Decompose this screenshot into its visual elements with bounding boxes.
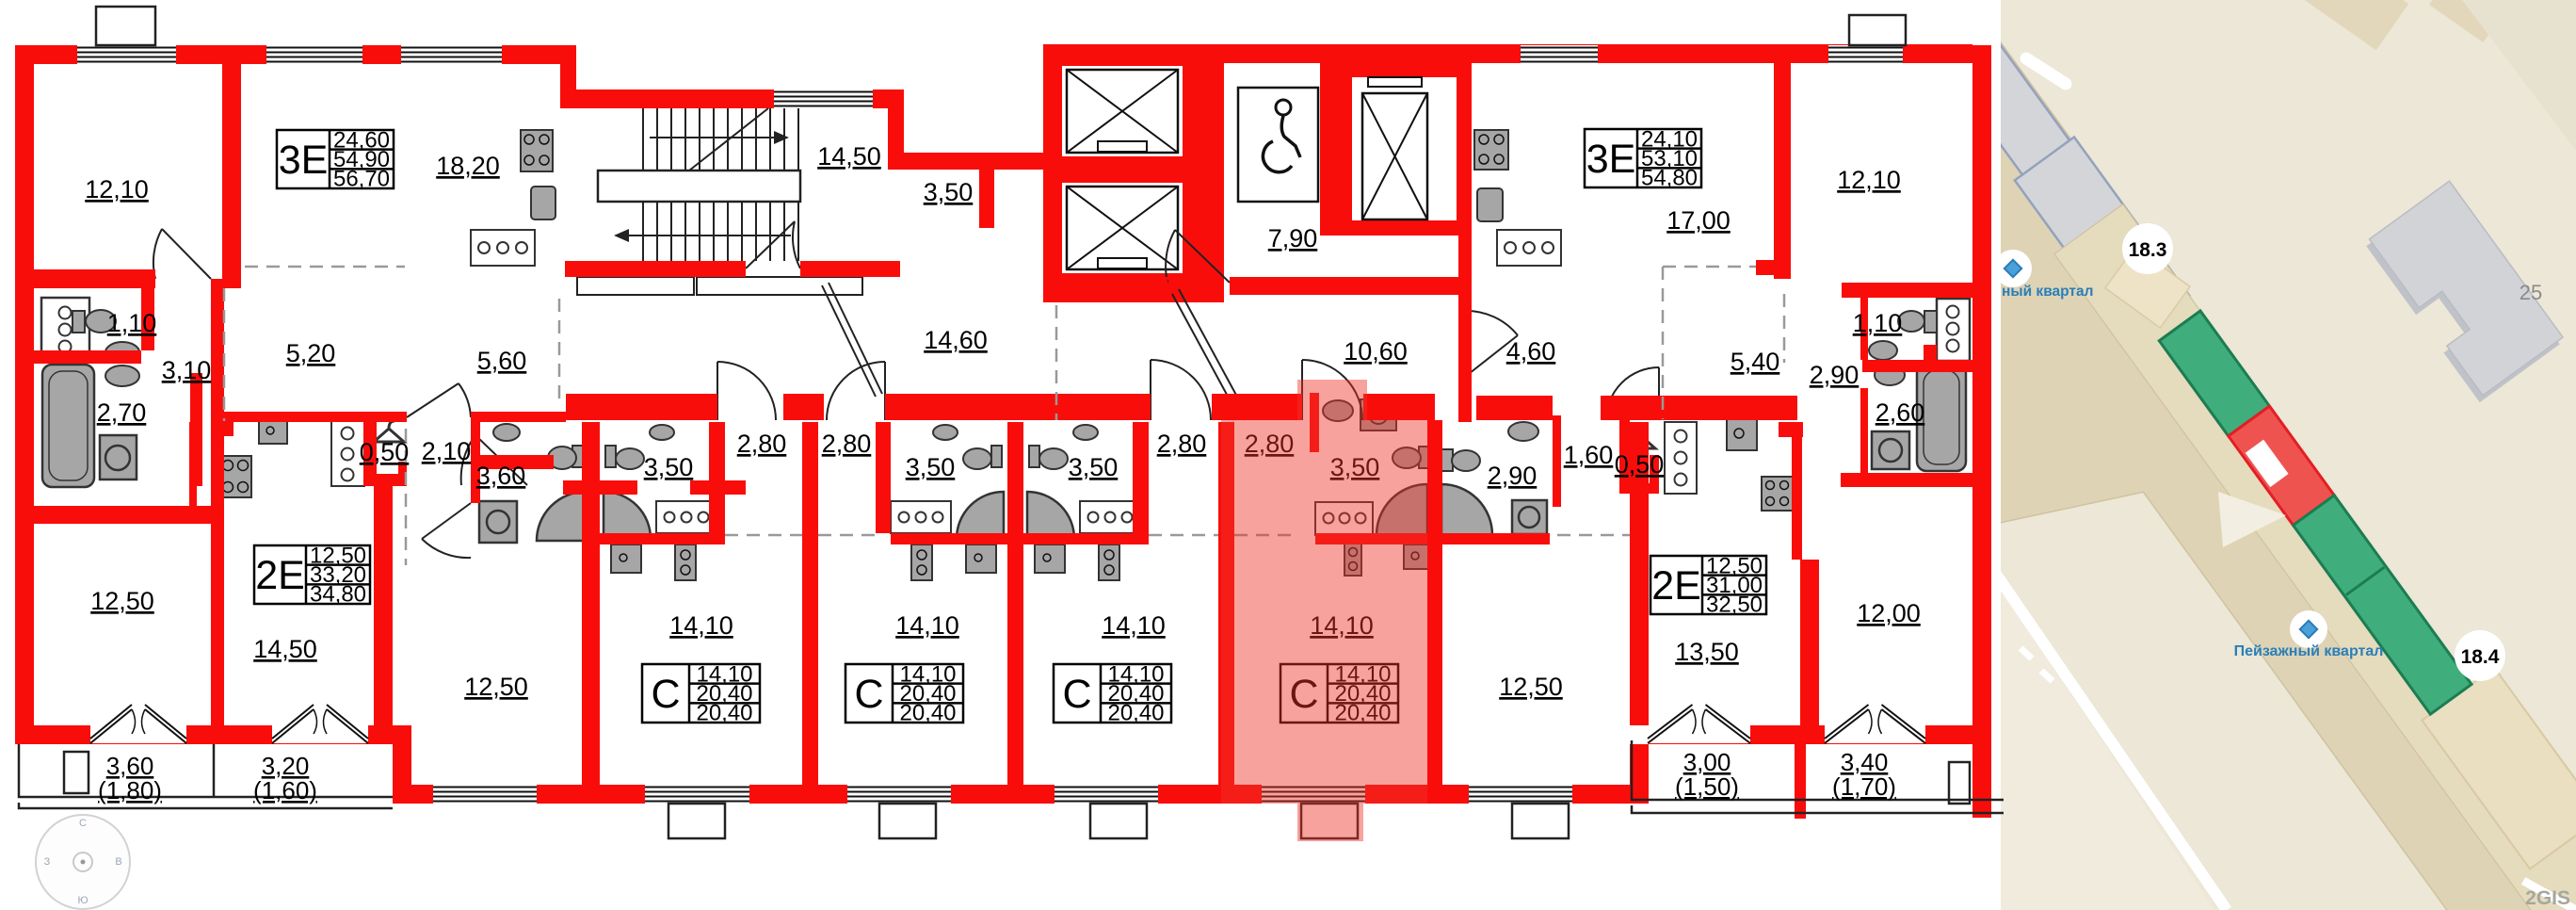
svg-text:3,50: 3,50 [924,178,974,206]
svg-text:2,10: 2,10 [422,437,472,465]
svg-text:14,10: 14,10 [669,611,733,640]
svg-text:4,60: 4,60 [1506,337,1556,366]
svg-text:5,40: 5,40 [1731,348,1780,376]
svg-text:0,50: 0,50 [360,438,410,466]
svg-text:2,60: 2,60 [1876,398,1925,427]
svg-text:3,10: 3,10 [162,356,212,384]
svg-text:20,40: 20,40 [1107,701,1164,726]
svg-text:34,80: 34,80 [310,582,366,608]
svg-text:7,90: 7,90 [1268,224,1318,252]
svg-text:1,10: 1,10 [1853,309,1903,337]
svg-text:0,50: 0,50 [1615,450,1665,479]
svg-text:12,50: 12,50 [464,673,528,701]
svg-text:(1,60): (1,60) [253,776,317,804]
svg-text:(1,70): (1,70) [1832,772,1896,801]
svg-text:(1,50): (1,50) [1675,772,1739,801]
svg-text:3,50: 3,50 [906,453,956,481]
svg-text:Пейзажный квартал: Пейзажный квартал [2234,643,2384,659]
svg-text:12,50: 12,50 [1499,673,1563,701]
svg-text:5,20: 5,20 [286,339,336,367]
svg-text:56,70: 56,70 [333,167,390,192]
svg-text:14,50: 14,50 [817,142,881,171]
svg-text:2,80: 2,80 [737,430,787,458]
svg-text:З: З [44,856,51,868]
svg-text:10,60: 10,60 [1344,337,1408,366]
svg-text:2,70: 2,70 [97,398,147,427]
svg-text:32,50: 32,50 [1706,593,1763,618]
svg-text:3,60: 3,60 [476,462,526,490]
svg-text:12,10: 12,10 [1837,166,1901,194]
svg-text:В: В [115,856,121,868]
svg-text:2,90: 2,90 [1810,361,1860,389]
svg-text:12,00: 12,00 [1857,599,1921,627]
svg-text:12,10: 12,10 [85,175,149,203]
svg-text:2GIS: 2GIS [2525,887,2570,909]
svg-text:С: С [854,672,883,717]
svg-text:12,50: 12,50 [90,587,154,615]
svg-text:3,50: 3,50 [644,453,694,481]
svg-text:С: С [651,672,680,717]
svg-text:ный квартал: ный квартал [2002,284,2093,300]
svg-text:14,10: 14,10 [1102,611,1166,640]
svg-text:20,40: 20,40 [899,701,956,726]
svg-text:14,50: 14,50 [253,635,317,663]
svg-text:1,60: 1,60 [1564,441,1614,469]
svg-text:3Е: 3Е [279,138,329,183]
svg-text:18.4: 18.4 [2461,646,2500,668]
svg-text:18.3: 18.3 [2129,239,2167,261]
svg-text:14,60: 14,60 [924,326,988,354]
svg-text:3Е: 3Е [1586,137,1636,182]
svg-text:2Е: 2Е [1651,563,1701,609]
svg-text:13,50: 13,50 [1675,638,1739,666]
svg-text:20,40: 20,40 [696,701,752,726]
svg-text:1,10: 1,10 [107,309,157,337]
svg-text:25: 25 [2520,281,2542,304]
svg-text:(1,80): (1,80) [98,776,162,804]
svg-text:С: С [1062,672,1091,717]
svg-text:2Е: 2Е [255,553,305,598]
svg-text:17,00: 17,00 [1666,206,1731,235]
svg-text:18,20: 18,20 [436,152,500,180]
svg-text:С: С [79,818,87,829]
svg-text:2,80: 2,80 [1157,430,1207,458]
svg-text:2,80: 2,80 [822,430,872,458]
svg-text:Ю: Ю [77,895,88,906]
svg-text:2,90: 2,90 [1488,462,1538,490]
svg-text:14,10: 14,10 [895,611,959,640]
svg-text:5,60: 5,60 [477,347,527,375]
svg-text:54,80: 54,80 [1641,166,1698,191]
svg-text:3,50: 3,50 [1069,453,1119,481]
